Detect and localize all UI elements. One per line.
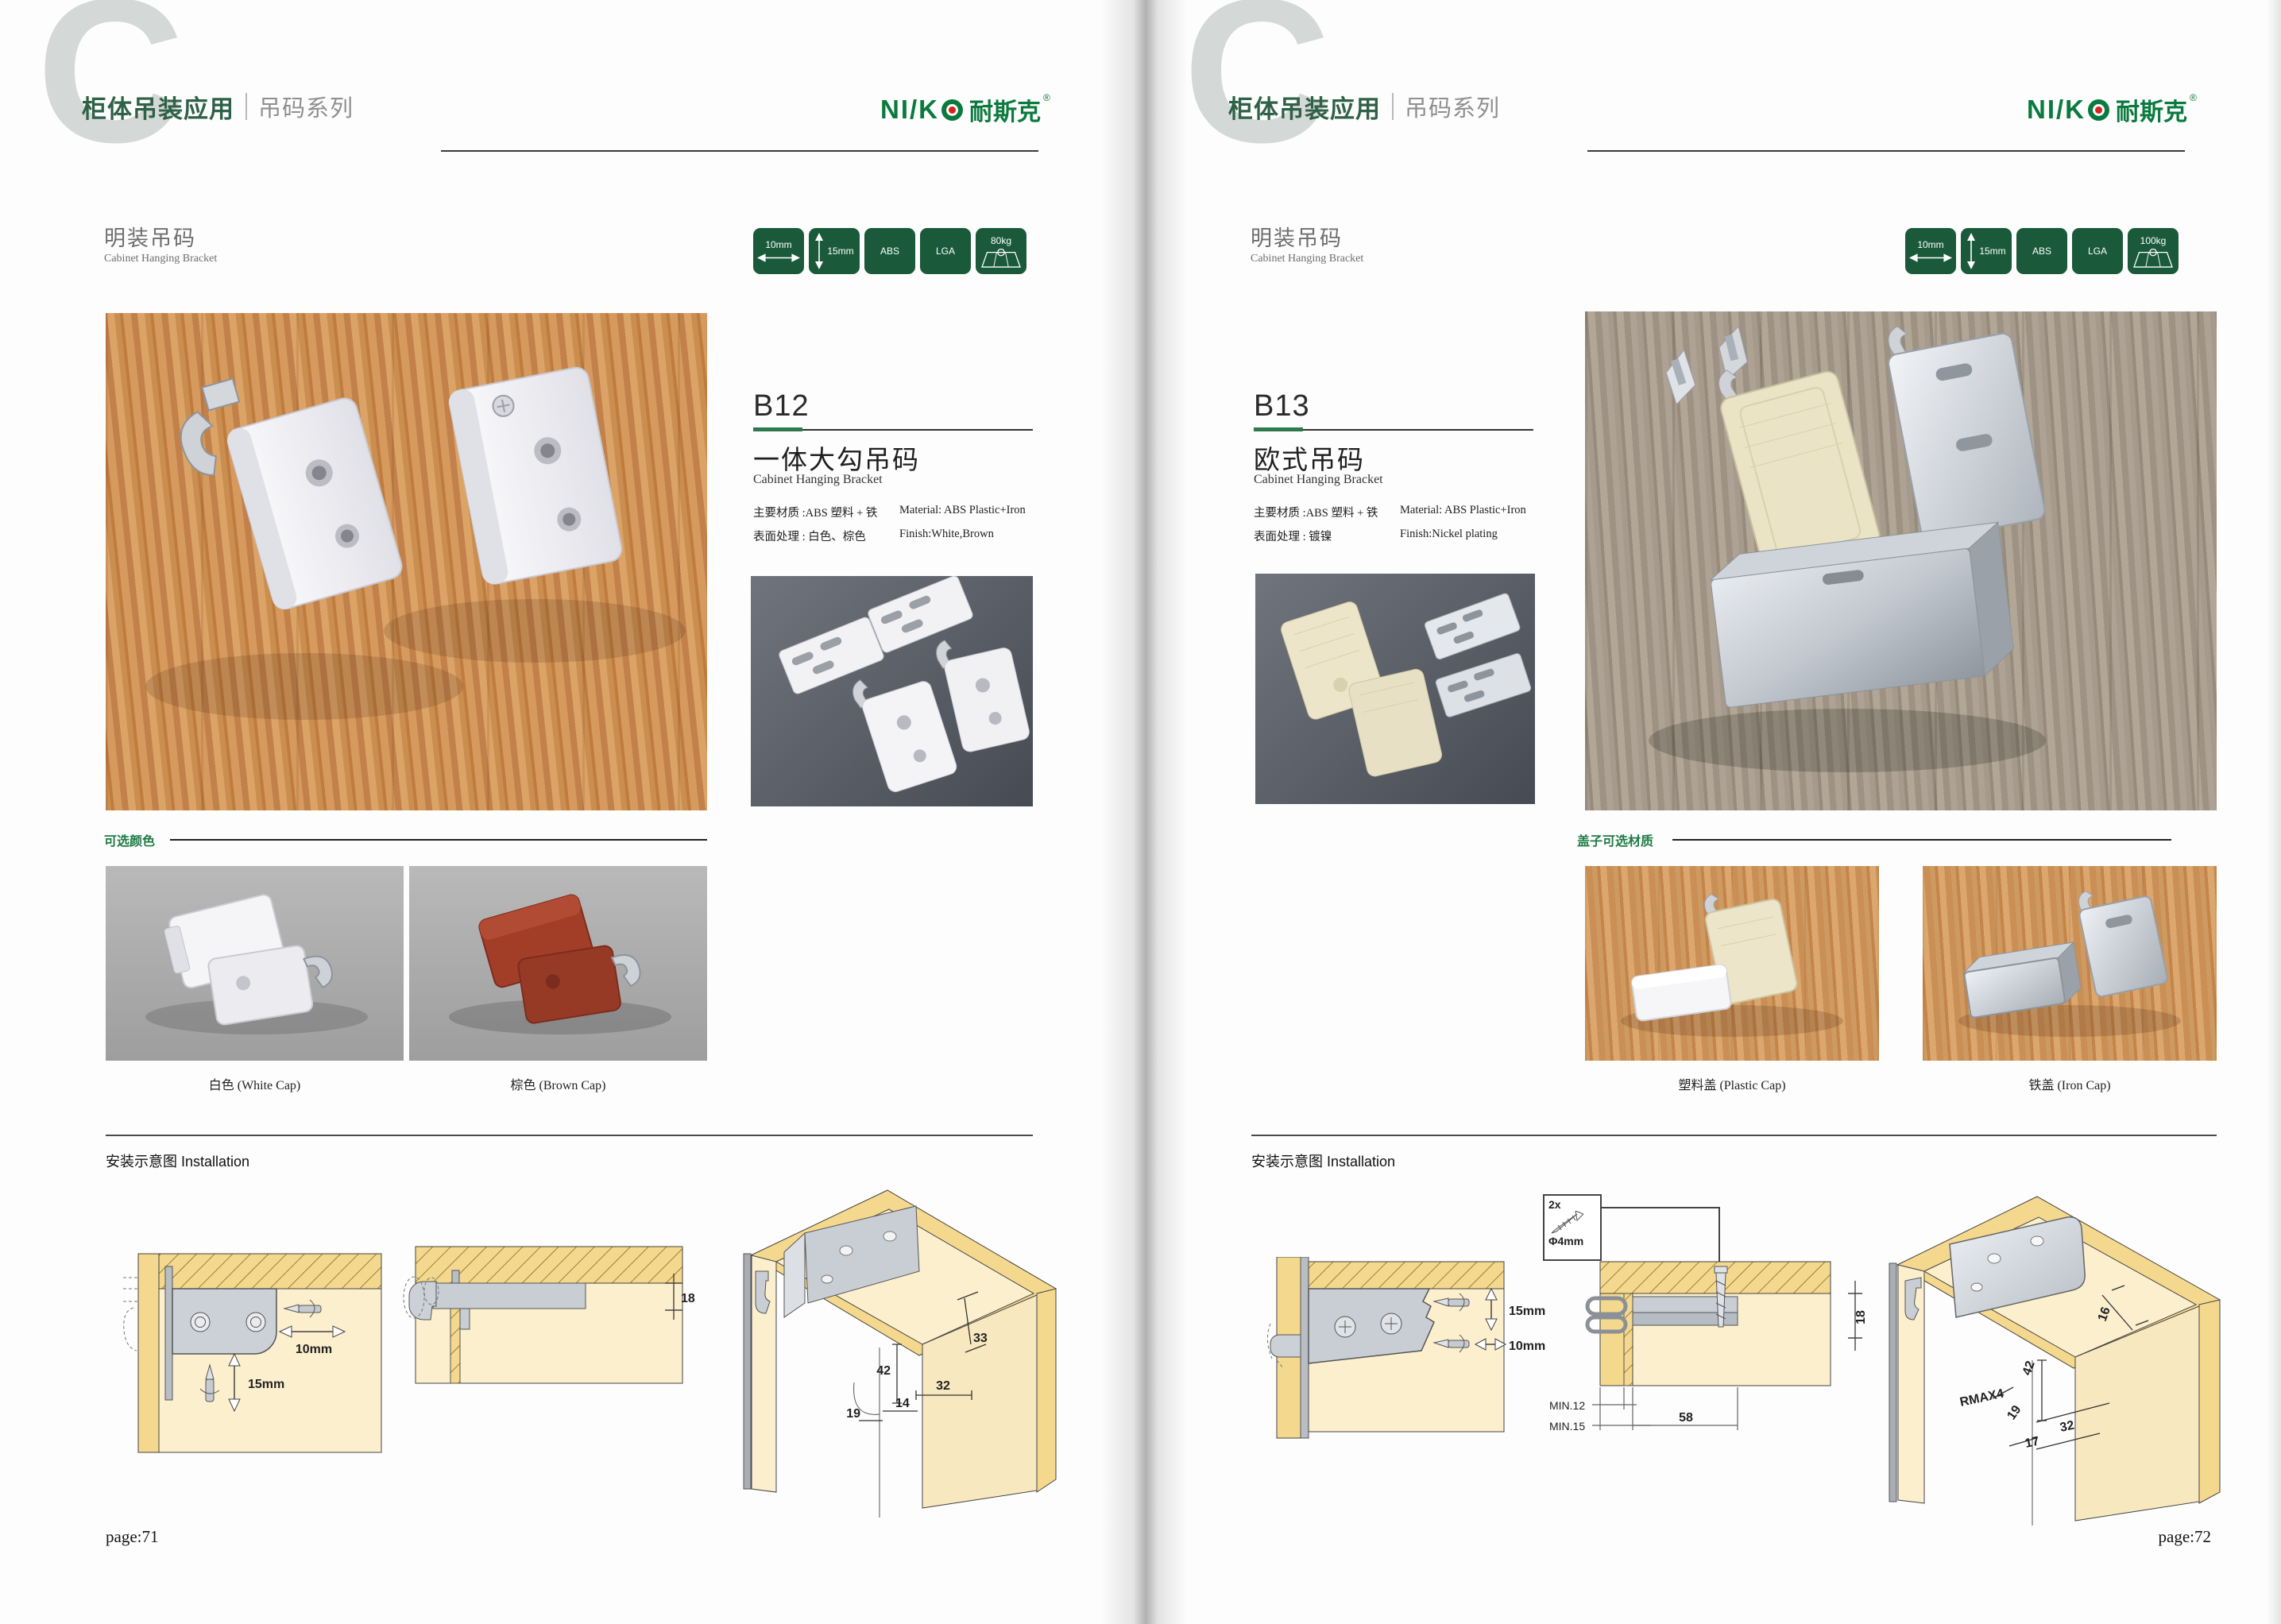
installation-label: 安装示意图 Installation (1251, 1150, 1395, 1171)
section-title-en: Cabinet Hanging Bracket (1251, 253, 1363, 265)
dim-label: 19 (2005, 1403, 2024, 1422)
header-title-cn: 柜体吊装应用 (82, 89, 234, 125)
installation-rule (106, 1135, 1033, 1136)
hook-bracket (849, 659, 958, 795)
spec-finish-cn: 表面处理 : 白色、棕色 (753, 528, 899, 544)
section-title-cn: 明装吊码 (1251, 221, 1343, 252)
logo-o-icon (2088, 99, 2109, 121)
page-header: 柜体吊装应用 吊码系列 (82, 89, 354, 124)
logo-cn: 耐斯克 (2116, 92, 2187, 127)
parts-photo-art (1255, 574, 1535, 804)
header-title-cn: 柜体吊装应用 (1228, 89, 1381, 125)
product-rule-accent (753, 427, 802, 431)
spec-material-cn: 主要材质 :ABS 塑料 + 铁 (753, 504, 899, 520)
dim-label: 42 (2020, 1359, 2038, 1378)
installation-diagram-3d: 33 42 32 14 19 (727, 1174, 1059, 1520)
badge-depth-label: 10mm (765, 239, 791, 250)
bracket-photo-art (106, 313, 707, 810)
dim-label: 32 (2059, 1419, 2075, 1435)
rail-plate (867, 576, 974, 654)
screw-icon (1381, 1313, 1401, 1334)
dim-label: 15mm (248, 1378, 284, 1391)
badge-depth-label: 10mm (1917, 239, 1943, 250)
page-edge (2267, 0, 2281, 1624)
logo-cn: 耐斯克 (969, 92, 1041, 127)
badge-material: ABS (864, 228, 915, 274)
callout-line (1602, 1207, 1720, 1208)
spec-badges: 10mm 15mm ABS LGA 100kg (1905, 228, 2179, 274)
dim-label: 17 (2024, 1435, 2040, 1451)
options-label: 可选颜色 (104, 830, 155, 849)
options-label: 盖子可选材质 (1577, 830, 1653, 849)
badge-cert-label: LGA (936, 246, 955, 257)
option-caption: 棕色 (Brown Cap) (409, 1074, 707, 1093)
option-photo-white (106, 866, 404, 1061)
section-title-en: Cabinet Hanging Bracket (104, 253, 217, 265)
spec-finish-en: Finish:Nickel plating (1400, 528, 1533, 544)
badge-material: ABS (2016, 228, 2067, 274)
product-name-en: Cabinet Hanging Bracket (1254, 473, 1383, 487)
bracket-photo-art (1585, 311, 2217, 810)
badge-depth: 10mm (753, 228, 804, 274)
load-shelf-icon (981, 249, 1021, 268)
spec-material-en: Material: ABS Plastic+Iron (1400, 504, 1533, 520)
badge-cert-label: LGA (2088, 246, 2107, 257)
dim-label: 32 (936, 1379, 950, 1393)
badge-load-label: 100kg (2140, 235, 2167, 246)
option-iron-art (1923, 866, 2217, 1061)
badge-load: 100kg (2128, 228, 2179, 274)
product-name-en: Cabinet Hanging Bracket (753, 473, 883, 487)
vertical-arrow-icon (1966, 233, 1976, 269)
header-divider (1392, 93, 1394, 120)
screw-icon (1335, 1317, 1355, 1337)
load-shelf-icon (2133, 249, 2173, 268)
section-title-cn: 明装吊码 (104, 221, 196, 252)
dim-label: 42 (876, 1364, 891, 1378)
dim-label: 10mm (296, 1343, 332, 1356)
chapter-letter: C (37, 0, 184, 173)
nickel-cover-box (1708, 522, 2016, 707)
hook-bracket (934, 626, 1030, 754)
horizontal-arrow-icon (757, 253, 800, 263)
metal-clip (1661, 350, 1699, 404)
page-number: page:72 (2005, 1527, 2211, 1547)
product-photo-parts (1255, 574, 1535, 804)
page-number: page:71 (106, 1527, 158, 1547)
spec-badges: 10mm 15mm ABS LGA 80kg (753, 228, 1026, 274)
product-photo-main (1585, 311, 2217, 810)
nickel-bracket (1882, 311, 2047, 542)
dim-label: 18 (1854, 1310, 1868, 1324)
header-rule (1587, 150, 2185, 152)
badge-height-label: 15mm (827, 246, 853, 257)
brand-logo: NI/K 耐斯克 ® (2027, 92, 2197, 127)
badge-cert: LGA (2072, 228, 2123, 274)
installation-label: 安装示意图 Installation (106, 1150, 249, 1171)
dim-label: 33 (973, 1332, 988, 1345)
header-rule (441, 150, 1038, 152)
rail-plate (778, 616, 885, 694)
header-series-cn: 吊码系列 (1405, 90, 1500, 123)
badge-height-label: 15mm (1979, 246, 2005, 257)
page-right: C 柜体吊装应用 吊码系列 NI/K 耐斯克 ® 明装吊码 Cabinet Ha… (1146, 0, 2281, 1624)
option-photo-brown (409, 866, 707, 1061)
option-caption: 铁盖 (Iron Cap) (1923, 1074, 2217, 1093)
product-name-cn: 一体大勾吊码 (753, 439, 920, 477)
dim-label: 15mm (1509, 1305, 1545, 1318)
dim-label: 19 (846, 1407, 860, 1421)
rail-plate (1424, 593, 1521, 660)
registered-mark: ® (1043, 92, 1050, 103)
product-photo-parts (751, 576, 1033, 806)
dim-label: MIN.12 (1549, 1399, 1585, 1412)
spec-material-en: Material: ABS Plastic+Iron (899, 504, 1033, 520)
dim-label: 10mm (1509, 1340, 1545, 1353)
installation-diagram-front: 15mm 10mm (1266, 1257, 1564, 1444)
product-specs: 主要材质 :ABS 塑料 + 铁 Material: ABS Plastic+I… (1254, 504, 1533, 544)
spec-finish-en: Finish:White,Brown (899, 528, 1033, 544)
white-bracket (447, 365, 624, 586)
catalog-spread: C 柜体吊装应用 吊码系列 NI/K 耐斯克 ® 明装吊码 Cabinet Ha… (0, 0, 2281, 1624)
option-brown-art (409, 866, 707, 1061)
book-spine (1100, 0, 1188, 1624)
badge-cert: LGA (920, 228, 971, 274)
product-rule-accent (1254, 427, 1303, 431)
registered-mark: ® (2190, 92, 2197, 103)
badge-height: 15mm (809, 228, 860, 274)
installation-rule (1251, 1135, 2217, 1136)
white-bracket (168, 348, 405, 624)
dim-label: RMAX4 (1958, 1387, 2005, 1409)
metal-clip (1715, 327, 1750, 380)
extension-lines (1592, 1387, 1738, 1430)
option-photo-iron (1923, 866, 2217, 1061)
spec-material-cn: 主要材质 :ABS 塑料 + 铁 (1254, 504, 1400, 520)
installation-diagram-front: 10mm 15mm (121, 1239, 383, 1456)
option-plastic-art (1585, 866, 1879, 1061)
options-rule (170, 839, 707, 841)
hook-profile (1270, 1335, 1301, 1357)
installation-diagram-side: 18 (401, 1242, 697, 1389)
logo-red-dot-icon (2095, 106, 2102, 114)
product-specs: 主要材质 :ABS 塑料 + 铁 Material: ABS Plastic+I… (753, 504, 1033, 544)
installation-diagram-side: 18 MIN.12 MIN.15 58 (1548, 1233, 1869, 1448)
screw-icon (191, 1313, 210, 1332)
options-rule (1672, 839, 2171, 841)
option-white-art (106, 866, 404, 1061)
option-caption: 塑料盖 (Plastic Cap) (1585, 1074, 1879, 1093)
logo-red-dot-icon (949, 106, 956, 114)
badge-depth: 10mm (1905, 228, 1956, 274)
option-caption: 白色 (White Cap) (106, 1074, 404, 1093)
installation-diagram-3d: 16 42 RMAX4 19 32 17 (1873, 1182, 2227, 1528)
logo-latin: NI/K (880, 95, 939, 125)
dim-label: 58 (1679, 1411, 1693, 1425)
rail-plate (1435, 652, 1532, 717)
screw-icon (246, 1313, 265, 1332)
badge-load: 80kg (976, 228, 1026, 274)
spec-finish-cn: 表面处理 : 镀镍 (1254, 528, 1400, 544)
dim-label: MIN.15 (1549, 1420, 1585, 1433)
chapter-letter: C (1183, 0, 1331, 173)
badge-height: 15mm (1961, 228, 2012, 274)
header-series-cn: 吊码系列 (258, 90, 354, 123)
option-photo-plastic (1585, 866, 1879, 1061)
logo-latin: NI/K (2027, 95, 2086, 125)
header-divider (245, 93, 247, 120)
plastic-bracket (1347, 667, 1444, 778)
badge-material-label: ABS (880, 246, 899, 257)
logo-o-icon (941, 99, 963, 121)
page-left: C 柜体吊装应用 吊码系列 NI/K 耐斯克 ® 明装吊码 Cabinet Ha… (0, 0, 1146, 1624)
page-header: 柜体吊装应用 吊码系列 (1228, 89, 1500, 124)
badge-material-label: ABS (2032, 246, 2051, 257)
product-code: B12 (753, 389, 810, 423)
horizontal-arrow-icon (1909, 253, 1952, 263)
product-name-cn: 欧式吊码 (1254, 439, 1365, 477)
screw-icon (1548, 1211, 1583, 1235)
dim-label: 14 (895, 1397, 910, 1410)
screw-count: 2x (1548, 1198, 1561, 1211)
badge-load-label: 80kg (991, 235, 1011, 246)
brand-logo: NI/K 耐斯克 ® (880, 92, 1050, 127)
product-code: B13 (1254, 389, 1310, 423)
dim-label: 18 (681, 1292, 695, 1305)
parts-photo-art (751, 576, 1033, 806)
vertical-arrow-icon (814, 233, 824, 269)
product-photo-main (106, 313, 707, 810)
